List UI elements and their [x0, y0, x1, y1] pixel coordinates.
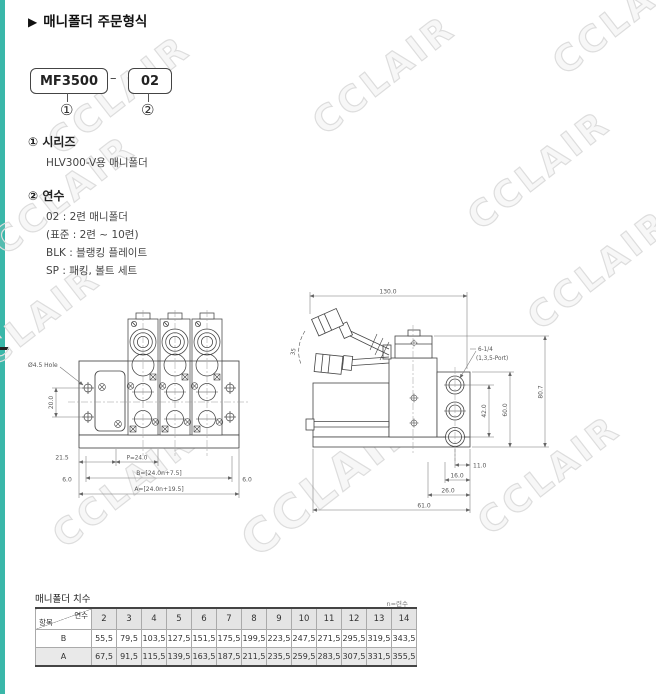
stations-heading-label: 연수 — [42, 189, 64, 203]
dimension-value: 211,5 — [242, 648, 267, 667]
station-count-header: 3 — [117, 608, 142, 630]
dimension-value: 283,5 — [317, 648, 342, 667]
table-header-row: 연수 항목 234567891011121314 — [36, 608, 417, 630]
stations-line-2: (표준 : 2련 ~ 10련) — [46, 227, 139, 242]
dimension-value: 79,5 — [117, 630, 142, 648]
port-id-label: (1,3,5-Port) — [476, 356, 508, 362]
hole-label: Ø4.5 Hole — [28, 362, 58, 369]
model-code: MF3500 — [40, 74, 98, 89]
table-corner-cell: 연수 항목 — [36, 608, 92, 630]
dimension-value: 139,5 — [167, 648, 192, 667]
series-description: HLV300-V용 매니폴더 — [46, 155, 148, 170]
callout-number-1: ① — [60, 101, 73, 119]
model-code-box: MF3500 — [30, 68, 108, 94]
station-count-header: 14 — [392, 608, 417, 630]
dimension-value: 199,5 — [242, 630, 267, 648]
dimension-value: 307,5 — [342, 648, 367, 667]
dim-42: 42.0 — [481, 404, 488, 418]
stations-line-1: 02 : 2련 매니폴더 — [46, 209, 128, 224]
corner-label-top: 연수 — [74, 610, 88, 621]
table-title: 매니폴더 치수 — [35, 591, 90, 605]
stations-heading: ② 연수 — [28, 187, 64, 204]
dimension-value: 235,5 — [267, 648, 292, 667]
page-title: 매니폴더 주문형식 — [43, 14, 147, 30]
dim-11: 11.0 — [473, 463, 487, 470]
dimension-value: 67,5 — [92, 648, 117, 667]
catalog-page: CCLAIR CCLAIR CCLAIR CCLAIR CCLAIR CCLAI… — [0, 0, 656, 694]
dimension-value: 55,5 — [92, 630, 117, 648]
watermark: CCLAIR — [460, 102, 618, 238]
station-count-header: 10 — [292, 608, 317, 630]
row-label: A — [36, 648, 92, 667]
station-count-header: 12 — [342, 608, 367, 630]
dimension-value: 331,5 — [367, 648, 392, 667]
technical-drawing: Ø4.5 Hole 20.0 21.5 P=24.0 B=[24.0n+7.5]… — [0, 279, 656, 519]
code-separator: – — [110, 71, 117, 86]
dim-60: 60.0 — [502, 403, 509, 417]
side-view: 130.0 35 6-1/4 (1,3,5-Port) 80.7 60.0 42… — [290, 289, 549, 514]
dim-16: 16.0 — [450, 473, 464, 480]
series-heading-label: 시리즈 — [42, 135, 75, 149]
series-heading: ① 시리즈 — [28, 133, 75, 150]
stations-heading-num: ② — [28, 189, 38, 203]
dimension-value: 247,5 — [292, 630, 317, 648]
dimension-row: A67,591,5115,5139,5163,5187,5211,5235,52… — [36, 648, 417, 667]
corner-label-bottom: 항목 — [39, 617, 53, 628]
station-count-header: 6 — [192, 608, 217, 630]
watermark: CCLAIR — [545, 0, 656, 84]
dimension-table: 연수 항목 234567891011121314 B55,579,5103,51… — [35, 607, 417, 667]
dimension-value: 175,5 — [217, 630, 242, 648]
dim-a: A=[24.0n+19.5] — [134, 486, 183, 493]
dimension-value: 259,5 — [292, 648, 317, 667]
station-count-header: 13 — [367, 608, 392, 630]
dim-pitch: P=24.0 — [127, 456, 148, 462]
front-view: Ø4.5 Hole 20.0 21.5 P=24.0 B=[24.0n+7.5]… — [28, 310, 252, 498]
dimension-value: 103,5 — [142, 630, 167, 648]
station-count-header: 9 — [267, 608, 292, 630]
dimension-row: B55,579,5103,5127,5151,5175,5199,5223,52… — [36, 630, 417, 648]
dim-6-right: 6.0 — [242, 477, 252, 484]
station-count-header: 11 — [317, 608, 342, 630]
dimension-value: 223,5 — [267, 630, 292, 648]
dim-61: 61.0 — [417, 503, 431, 510]
station-count-header: 4 — [142, 608, 167, 630]
station-count-header: 8 — [242, 608, 267, 630]
port-size-label: 6-1/4 — [478, 347, 493, 353]
suffix-code: 02 — [141, 74, 159, 89]
dim-21-5: 21.5 — [55, 455, 69, 462]
dim-20: 20.0 — [48, 396, 55, 410]
dim-b: B=[24.0n+7.5] — [136, 470, 182, 477]
dim-130: 130.0 — [379, 289, 396, 296]
dimension-value: 355,5 — [392, 648, 417, 667]
dim-80-7: 80.7 — [538, 385, 545, 399]
dimension-value: 91,5 — [117, 648, 142, 667]
station-count-header: 7 — [217, 608, 242, 630]
station-count-header: 2 — [92, 608, 117, 630]
dimension-value: 319,5 — [367, 630, 392, 648]
dim-6-left: 6.0 — [62, 477, 72, 484]
dim-26: 26.0 — [441, 488, 455, 495]
dimension-value: 187,5 — [217, 648, 242, 667]
watermark: CCLAIR — [305, 7, 463, 143]
header-arrow-icon: ▶ — [28, 15, 37, 29]
dimension-value: 295,5 — [342, 630, 367, 648]
dimension-value: 151,5 — [192, 630, 217, 648]
stations-line-3: BLK : 블랭킹 플레이트 — [46, 245, 147, 260]
stations-line-4: SP : 패킹, 볼트 세트 — [46, 263, 137, 278]
callout-number-2: ② — [141, 101, 154, 119]
row-label: B — [36, 630, 92, 648]
station-count-header: 5 — [167, 608, 192, 630]
dimension-value: 127,5 — [167, 630, 192, 648]
dim-angle-35: 35 — [290, 347, 297, 356]
dimension-value: 343,5 — [392, 630, 417, 648]
section-header: ▶매니폴더 주문형식 — [28, 10, 147, 30]
dimension-value: 115,5 — [142, 648, 167, 667]
dimension-value: 163,5 — [192, 648, 217, 667]
suffix-code-box: 02 — [128, 68, 172, 94]
dimension-value: 271,5 — [317, 630, 342, 648]
series-heading-num: ① — [28, 135, 38, 149]
